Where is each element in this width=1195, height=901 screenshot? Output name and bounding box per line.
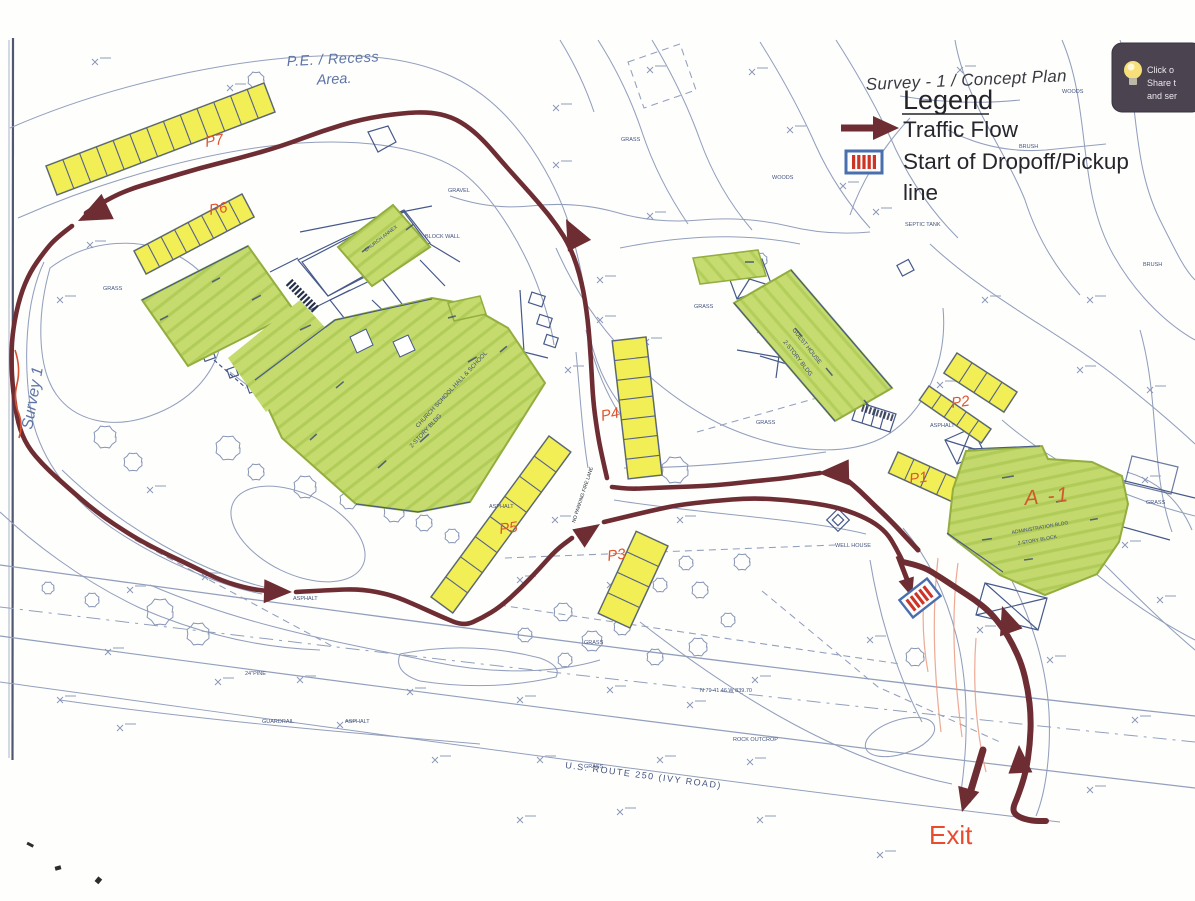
- svg-text:Click o: Click o: [1147, 65, 1174, 75]
- svg-text:P3: P3: [606, 545, 627, 564]
- svg-text:Share t: Share t: [1147, 78, 1177, 88]
- svg-text:N 79 41 46 W 839.70: N 79 41 46 W 839.70: [700, 688, 752, 694]
- svg-text:P7: P7: [204, 131, 226, 151]
- svg-text:and ser: and ser: [1147, 91, 1177, 101]
- svg-text:WOODS: WOODS: [772, 175, 794, 181]
- svg-text:P6: P6: [208, 199, 230, 219]
- svg-text:Area.: Area.: [315, 71, 351, 89]
- svg-text:A -1: A -1: [1021, 483, 1071, 510]
- svg-text:Start of Dropoff/Pickup: Start of Dropoff/Pickup: [903, 149, 1129, 174]
- svg-text:ROCK OUTCROP: ROCK OUTCROP: [733, 737, 778, 743]
- svg-text:Legend: Legend: [903, 85, 993, 115]
- svg-text:BRUSH: BRUSH: [1143, 262, 1162, 268]
- svg-text:24"PINE: 24"PINE: [245, 671, 266, 677]
- svg-text:BLOCK WALL: BLOCK WALL: [425, 234, 460, 240]
- svg-text:GRASS: GRASS: [621, 137, 641, 143]
- svg-text:GRASS: GRASS: [756, 420, 776, 426]
- svg-text:ASPHALT: ASPHALT: [293, 596, 318, 602]
- svg-text:GRASS: GRASS: [1146, 500, 1166, 506]
- svg-text:GUARDRAIL: GUARDRAIL: [262, 719, 294, 725]
- svg-text:P1: P1: [908, 469, 929, 488]
- svg-text:ASPHALT: ASPHALT: [345, 719, 370, 725]
- svg-text:P5: P5: [498, 518, 519, 537]
- svg-text:GRAVEL: GRAVEL: [448, 188, 470, 194]
- svg-text:GRASS: GRASS: [103, 286, 123, 292]
- svg-text:ASPHALT: ASPHALT: [930, 423, 955, 429]
- svg-text:WOODS: WOODS: [1062, 89, 1084, 95]
- svg-text:SEPTIC TANK: SEPTIC TANK: [905, 222, 941, 228]
- svg-text:WELL HOUSE: WELL HOUSE: [835, 543, 871, 549]
- svg-text:line: line: [903, 180, 938, 205]
- svg-text:Exit: Exit: [929, 820, 973, 850]
- svg-text:ASPHALT: ASPHALT: [489, 504, 514, 510]
- svg-text:GRASS: GRASS: [584, 640, 604, 646]
- svg-text:P2: P2: [950, 392, 971, 411]
- svg-text:Traffic Flow: Traffic Flow: [903, 117, 1019, 142]
- svg-text:GRASS: GRASS: [694, 304, 714, 310]
